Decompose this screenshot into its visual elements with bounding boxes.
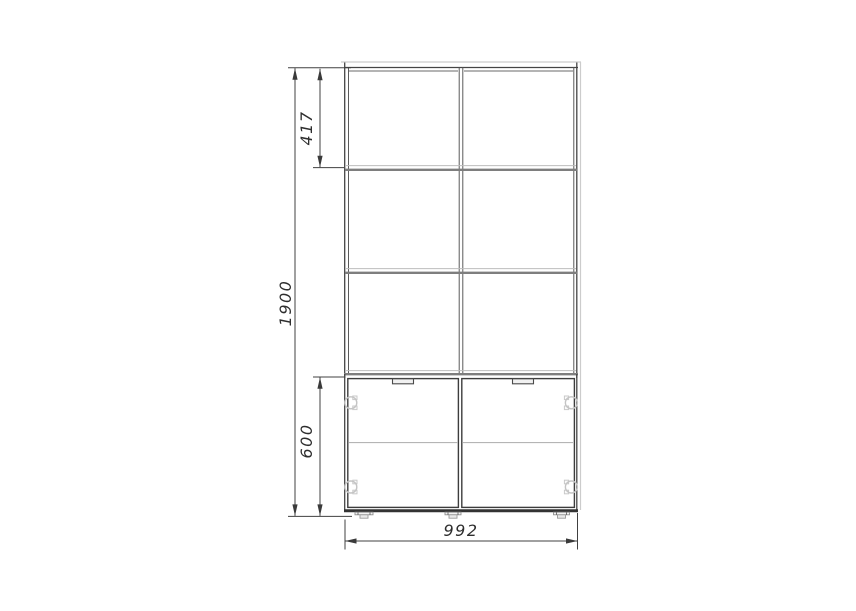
dimension-label-cabinet-height: 600: [297, 423, 316, 458]
left-door-hinges: [345, 396, 357, 494]
door-hinge: [345, 397, 357, 409]
furniture-technical-drawing: 1900 417 600 992: [0, 0, 856, 611]
right-door-hinges: [564, 396, 577, 494]
foot-right: [554, 512, 570, 518]
dimension-label-top-section: 417: [297, 110, 316, 145]
arrow-left-icon: [345, 538, 357, 543]
dimension-label-total-height: 1900: [276, 280, 295, 327]
shelf-unit: [341, 62, 581, 518]
foot-block: [360, 515, 368, 518]
door-hinge: [565, 397, 577, 409]
dimensions: 1900 417 600 992: [276, 68, 578, 550]
left-door-handle: [393, 379, 414, 384]
drawing-canvas: 1900 417 600 992: [0, 0, 856, 611]
arrow-down-icon: [292, 504, 297, 516]
dimension-top-section-height: 417: [297, 69, 323, 168]
dimension-overall-width: 992: [345, 521, 578, 544]
door-hinge: [345, 481, 357, 493]
arrow-up-icon: [292, 68, 297, 80]
arrow-down-icon: [317, 504, 322, 516]
dimension-total-height: 1900: [276, 68, 298, 516]
arrow-down-icon: [317, 156, 322, 168]
foot-left: [355, 512, 373, 518]
foot-block: [558, 515, 566, 518]
arrow-up-icon: [317, 69, 322, 81]
foot-block: [449, 515, 457, 518]
foot-center: [445, 512, 461, 518]
right-door-handle: [513, 379, 534, 384]
arrow-right-icon: [566, 538, 578, 543]
lower-cabinet-section: [344, 374, 578, 518]
door-hinge: [565, 481, 577, 493]
arrow-up-icon: [317, 377, 322, 389]
dimension-cabinet-height: 600: [297, 377, 323, 516]
dimension-label-overall-width: 992: [443, 521, 478, 540]
